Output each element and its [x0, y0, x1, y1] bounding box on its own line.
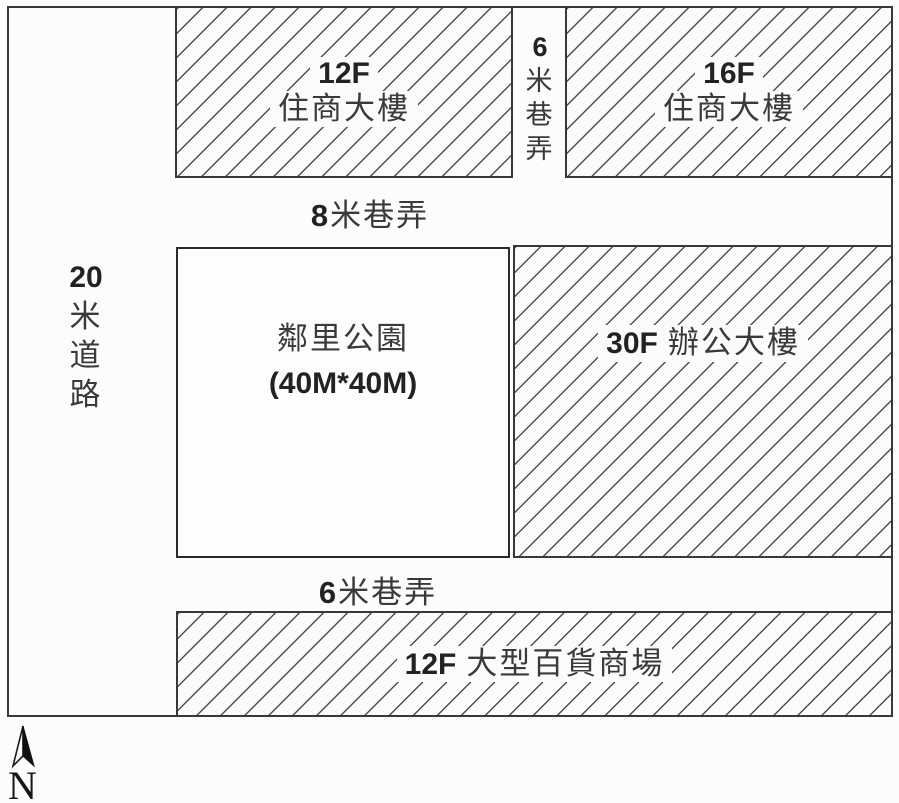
alley-6m-north-char-2: 巷 — [526, 98, 555, 132]
alley-6m-north-label: 6 米 巷 弄 — [522, 30, 558, 166]
road-20m-char-3: 路 — [70, 375, 103, 414]
building-department-store-floors: 12F — [405, 648, 457, 683]
park-name: 鄰里公園 — [269, 321, 417, 357]
building-residential-nw: 12F 住商大樓 — [175, 6, 513, 178]
building-office-label: 30F 辦公大樓 — [598, 325, 808, 362]
alley-8m-label: 8 米巷弄 — [250, 190, 490, 235]
building-residential-ne-name: 住商大樓 — [655, 91, 803, 127]
building-residential-ne-floors: 16F — [695, 57, 763, 92]
building-residential-ne: 16F 住商大樓 — [565, 6, 893, 178]
park-size: (40M*40M) — [261, 367, 425, 402]
alley-8m-name: 米巷弄 — [330, 190, 429, 235]
alley-6m-south-label: 6 米巷弄 — [258, 567, 498, 612]
alley-6m-south-width: 6 — [319, 575, 336, 611]
alley-6m-north-char-1: 米 — [526, 64, 555, 98]
building-residential-nw-floors: 12F — [310, 57, 378, 92]
alley-6m-north-width: 6 — [532, 30, 547, 64]
road-20m-char-1: 米 — [70, 297, 103, 336]
building-office: 30F 辦公大樓 — [513, 245, 893, 558]
compass: N — [8, 725, 48, 803]
building-office-name: 辦公大樓 — [668, 325, 800, 361]
park-block: 鄰里公園 (40M*40M) — [176, 247, 510, 558]
north-label: N — [8, 766, 37, 803]
building-office-floors: 30F — [606, 327, 658, 362]
building-department-store-label: 12F 大型百貨商場 — [397, 646, 673, 683]
building-residential-nw-name: 住商大樓 — [270, 91, 418, 127]
alley-6m-south-name: 米巷弄 — [338, 567, 437, 612]
alley-6m-north-char-3: 弄 — [526, 132, 555, 166]
road-20m-char-2: 道 — [70, 336, 103, 375]
building-department-store-name: 大型百貨商場 — [466, 646, 664, 682]
alley-8m-width: 8 — [311, 198, 328, 234]
road-20m-width: 20 — [69, 258, 102, 297]
site-plan-diagram: 12F 住商大樓 16F 住商大樓 6 米 巷 弄 8 米巷弄 20 米 道 路… — [0, 0, 899, 803]
road-20m-label: 20 米 道 路 — [56, 258, 116, 414]
building-department-store: 12F 大型百貨商場 — [176, 611, 893, 717]
